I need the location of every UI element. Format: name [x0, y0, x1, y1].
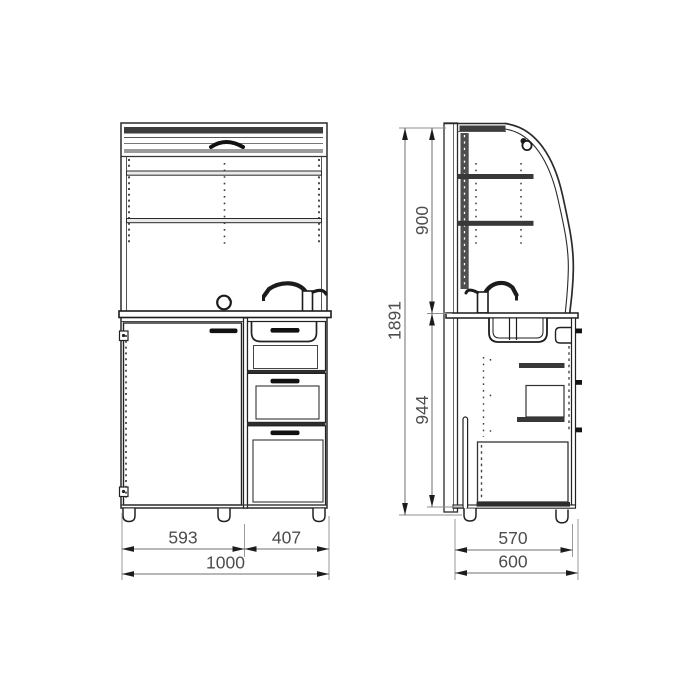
drawer-shelf-1 [519, 363, 565, 368]
dim-text-height-total: 1891 [385, 301, 405, 340]
faucet-side [466, 283, 517, 313]
faucet-lever [466, 290, 478, 293]
shelf-upper-side [458, 174, 534, 179]
back-rail-section [463, 417, 468, 509]
drawer-shelf-2 [517, 417, 565, 422]
drawer-handle-nub-2 [576, 380, 583, 385]
feet-front [123, 509, 325, 522]
plinth-bar [477, 502, 571, 507]
faucet-base [303, 291, 313, 312]
dimensions-front-width: 593 407 1000 [122, 513, 329, 580]
door-handle [210, 329, 238, 334]
top-drawer-front-section [556, 328, 572, 344]
technical-drawing-canvas: 593 407 1000 570 600 1891 900 944 [0, 0, 700, 700]
faucet-spout [485, 283, 517, 295]
shutter-handle-side [522, 141, 531, 150]
drawer-3 [248, 426, 326, 505]
dim-text-depth-inner: 570 [498, 528, 527, 548]
shelf-lower [127, 219, 322, 223]
shutter-gray-band [124, 149, 323, 153]
faucet-base [478, 292, 489, 313]
side-view [444, 123, 582, 523]
dim-text-height-upper: 900 [412, 206, 432, 235]
dim-text-height-base: 944 [412, 395, 432, 424]
countertop-front [119, 311, 331, 318]
shelf-lower-side [458, 221, 534, 226]
dim-text-depth-total: 600 [498, 552, 527, 572]
countertop-side [446, 313, 578, 318]
drawer-handle-nub-3 [576, 428, 583, 433]
shelf-upper [127, 171, 322, 175]
feet-side [464, 509, 568, 523]
dim-text-front-total: 1000 [206, 553, 245, 573]
front-view [119, 123, 331, 522]
dim-text-front-left: 593 [168, 528, 197, 548]
drawer-2-handle [271, 379, 300, 384]
drawer-box-3 [478, 442, 569, 502]
drawer-box-2 [526, 386, 564, 418]
drawer-1-handle [271, 328, 300, 333]
foot [313, 509, 325, 522]
drawer-stack-front [248, 322, 326, 506]
drawer-3-handle [271, 431, 300, 436]
base-side-section [453, 318, 582, 509]
dimensions-depth: 570 600 [455, 519, 578, 580]
foot [556, 510, 568, 523]
foot [123, 509, 135, 522]
foot [218, 509, 230, 522]
door-panel [124, 323, 242, 505]
shutter-dark-band [124, 127, 323, 134]
drawer-handle-nub-1 [576, 329, 583, 334]
mid-divider [244, 318, 248, 508]
front-edge [572, 318, 576, 505]
foot [464, 509, 476, 522]
top-cap [460, 126, 506, 132]
cable-hole [217, 296, 231, 310]
dim-text-front-right: 407 [272, 528, 301, 548]
